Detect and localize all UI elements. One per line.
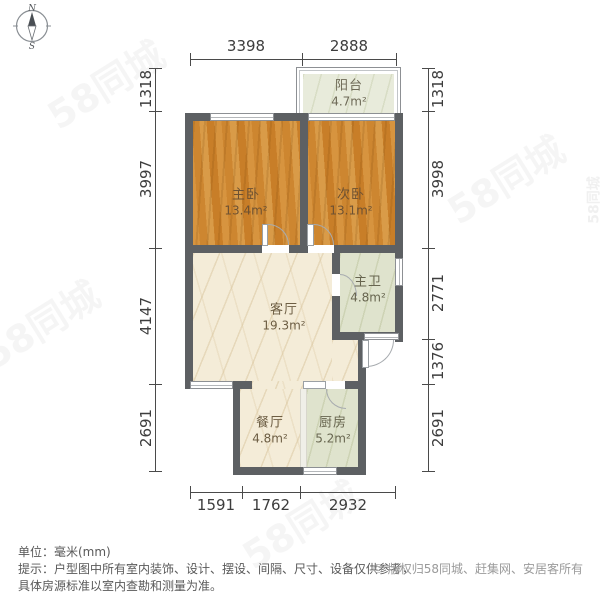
- dim-bottom-3: 2932: [329, 496, 367, 514]
- dim-right-5: 2691: [429, 409, 447, 447]
- entry-door-leaf: [362, 340, 369, 368]
- dim-tick: [396, 53, 397, 66]
- dim-right-2: 3998: [429, 160, 447, 198]
- kitchen-door-leaf: [303, 381, 326, 389]
- watermark-58: 58同城: [0, 265, 109, 380]
- wall-bottom: [233, 467, 366, 475]
- wall-dining-left: [233, 389, 240, 475]
- dim-tick: [422, 111, 435, 112]
- wall-kitchen-top: [345, 381, 366, 389]
- kitchen-label: 厨房 5.2m²: [315, 415, 351, 446]
- dim-bottom-1: 1591: [197, 496, 235, 514]
- entry-door-frame: [364, 333, 399, 340]
- master-bedroom-name: 主卧: [224, 187, 267, 203]
- dining-opening-floor: [252, 381, 303, 389]
- compass-south-label: S: [29, 42, 35, 52]
- footer-note-line2: 具体房源标准以室内查勘和测量为准。: [18, 577, 222, 594]
- dim-tick: [300, 486, 301, 499]
- master-bedroom-floor: [193, 121, 300, 245]
- footer-note-line1: 提示：户型图中所有室内装饰、设计、摆设、间隔、尺寸、设备仅供参考，: [18, 560, 414, 577]
- master-bedroom-label: 主卧 13.4m²: [224, 187, 267, 218]
- balcony-name: 阳台: [331, 78, 367, 94]
- dim-left-2: 3997: [137, 160, 155, 198]
- dim-right-3: 2771: [429, 274, 447, 312]
- living-room-name: 客厅: [262, 302, 305, 318]
- compass-north-label: N: [27, 4, 37, 14]
- dim-tick: [242, 486, 243, 499]
- dim-tick: [422, 248, 435, 249]
- dim-right-4: 1376: [429, 342, 447, 380]
- second-bedroom-area: 13.1m²: [329, 204, 372, 219]
- wall-bathroom-left: [332, 253, 340, 340]
- living-room-label: 客厅 19.3m²: [262, 302, 305, 333]
- master-bedroom-area: 13.4m²: [224, 204, 267, 219]
- bathroom-area: 4.8m²: [350, 291, 386, 306]
- entry-door-arc: [366, 340, 394, 367]
- watermark-58: 58同城: [435, 120, 573, 235]
- living-room-floor: [332, 340, 358, 381]
- dim-tick: [149, 384, 162, 385]
- dim-bottom-2: 1762: [252, 496, 290, 514]
- balcony-area: 4.7m²: [331, 95, 367, 110]
- dim-tick: [149, 248, 162, 249]
- dim-tick: [422, 471, 435, 472]
- wall-right: [395, 121, 403, 342]
- dim-line-top: [190, 59, 397, 60]
- dim-line-bottom: [190, 492, 396, 493]
- window-master-bedroom: [210, 113, 274, 121]
- dim-tick: [190, 53, 191, 66]
- dim-tick: [422, 339, 435, 340]
- dim-tick: [149, 68, 162, 69]
- dining-room-label: 餐厅 4.8m²: [252, 415, 288, 446]
- second-bedroom-door-leaf: [307, 224, 314, 246]
- bathroom-door-gap: [332, 274, 340, 296]
- dim-top-2: 2888: [330, 37, 368, 55]
- dining-room-area: 4.8m²: [252, 432, 288, 447]
- dim-left-3: 4147: [137, 297, 155, 335]
- bathroom-label: 主卫 4.8m²: [350, 274, 386, 305]
- balcony-label: 阳台 4.7m²: [331, 78, 367, 109]
- second-bedroom-door-gap: [308, 245, 334, 253]
- compass-icon: N S: [8, 2, 56, 52]
- dining-kitchen-divider: [300, 389, 307, 467]
- second-bedroom-label: 次卧 13.1m²: [329, 187, 372, 218]
- dim-tick: [149, 471, 162, 472]
- master-bedroom-door-leaf: [262, 224, 268, 246]
- dim-left-4: 2691: [137, 409, 155, 447]
- bathroom-name: 主卫: [350, 274, 386, 290]
- window-kitchen-south: [303, 467, 337, 475]
- watermark-58-edge: 58同城: [584, 176, 600, 223]
- dining-room-name: 餐厅: [252, 415, 288, 431]
- wall-left: [185, 121, 193, 389]
- window-living-south: [190, 381, 233, 389]
- dim-right-1: 1318: [429, 70, 447, 108]
- footer-unit-line: 单位：毫米(mm): [18, 543, 111, 560]
- wall-living-bottom: [233, 381, 252, 389]
- dim-tick: [149, 111, 162, 112]
- kitchen-area: 5.2m²: [315, 432, 351, 447]
- dim-tick: [422, 384, 435, 385]
- window-balcony-sill: [308, 113, 395, 121]
- dim-top-1: 3398: [227, 37, 265, 55]
- kitchen-name: 厨房: [315, 415, 351, 431]
- master-bedroom-door-gap: [262, 245, 289, 253]
- dim-line-left: [155, 68, 156, 472]
- wall-bedrooms-bottom: [185, 245, 403, 253]
- second-bedroom-name: 次卧: [329, 187, 372, 203]
- floorplan-canvas: 58同城 58同城 58同城 58同城 58同城 N S: [0, 0, 600, 600]
- footer-copyright: © 版权归58同城、赶集网、安居客所有: [372, 560, 583, 577]
- window-bathroom-east: [395, 258, 403, 286]
- dim-tick: [422, 68, 435, 69]
- living-room-area: 19.3m²: [262, 319, 305, 334]
- dim-left-1: 1318: [137, 70, 155, 108]
- dim-tick: [190, 486, 191, 499]
- dim-tick: [302, 53, 303, 66]
- dim-tick: [395, 486, 396, 499]
